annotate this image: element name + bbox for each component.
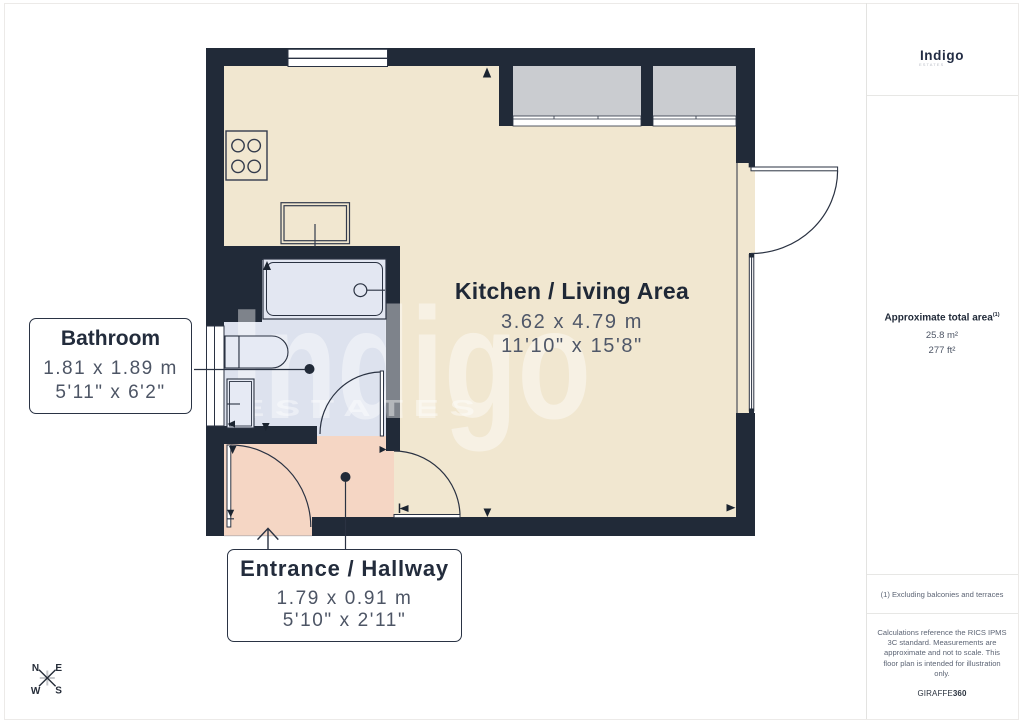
- svg-text:W: W: [31, 686, 41, 697]
- svg-text:N: N: [32, 663, 39, 674]
- svg-text:E: E: [55, 663, 62, 674]
- svg-text:E S T A T E S: E S T A T E S: [239, 395, 475, 421]
- svg-text:S: S: [55, 686, 62, 697]
